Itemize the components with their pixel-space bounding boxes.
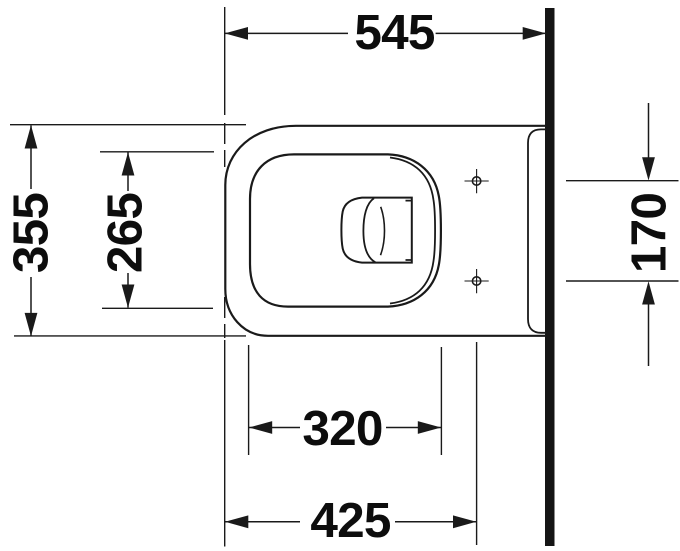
svg-text:355: 355 xyxy=(4,193,59,273)
svg-text:320: 320 xyxy=(302,401,382,456)
svg-text:545: 545 xyxy=(354,5,434,60)
svg-text:170: 170 xyxy=(622,193,677,273)
svg-text:265: 265 xyxy=(98,193,153,273)
svg-text:425: 425 xyxy=(310,493,390,548)
